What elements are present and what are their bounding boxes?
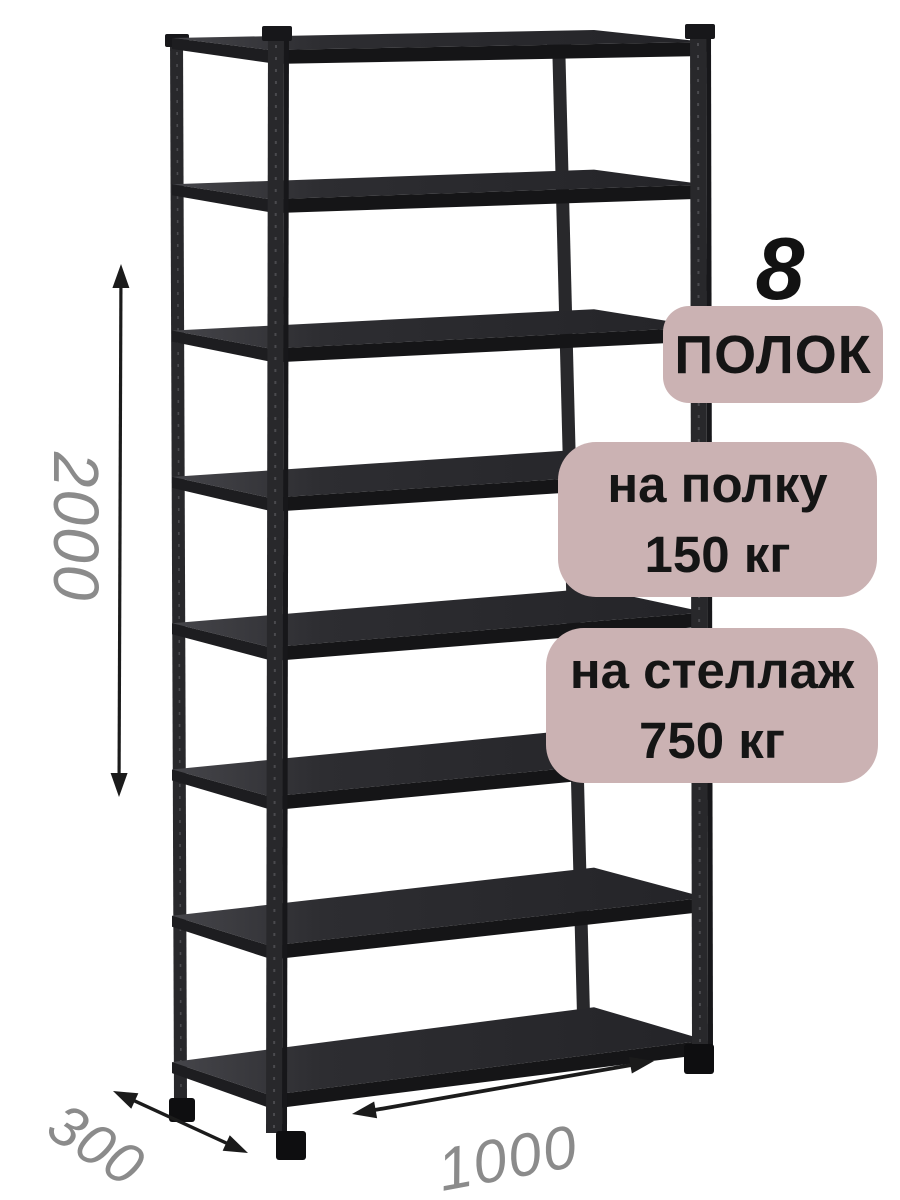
shelf-count-badge: ПОЛОК xyxy=(663,306,883,403)
height-dimension-label: 2000 xyxy=(39,452,113,602)
per-shelf-load-badge: на полку 150 кг xyxy=(558,442,877,597)
per-rack-load-badge: на стеллаж 750 кг xyxy=(546,628,878,783)
shelf-count-label: ПОЛОК xyxy=(674,324,871,386)
per-rack-load-line2: 750 кг xyxy=(639,706,785,775)
dimension-arrows xyxy=(0,0,900,1200)
product-image-canvas: 8 ПОЛОК на полку 150 кг на стеллаж 750 к… xyxy=(0,0,900,1200)
per-shelf-load-line2: 150 кг xyxy=(644,520,790,589)
shelf-count-number: 8 xyxy=(730,218,830,320)
per-shelf-load-line1: на полку xyxy=(607,450,827,519)
per-rack-load-line1: на стеллаж xyxy=(570,636,854,705)
